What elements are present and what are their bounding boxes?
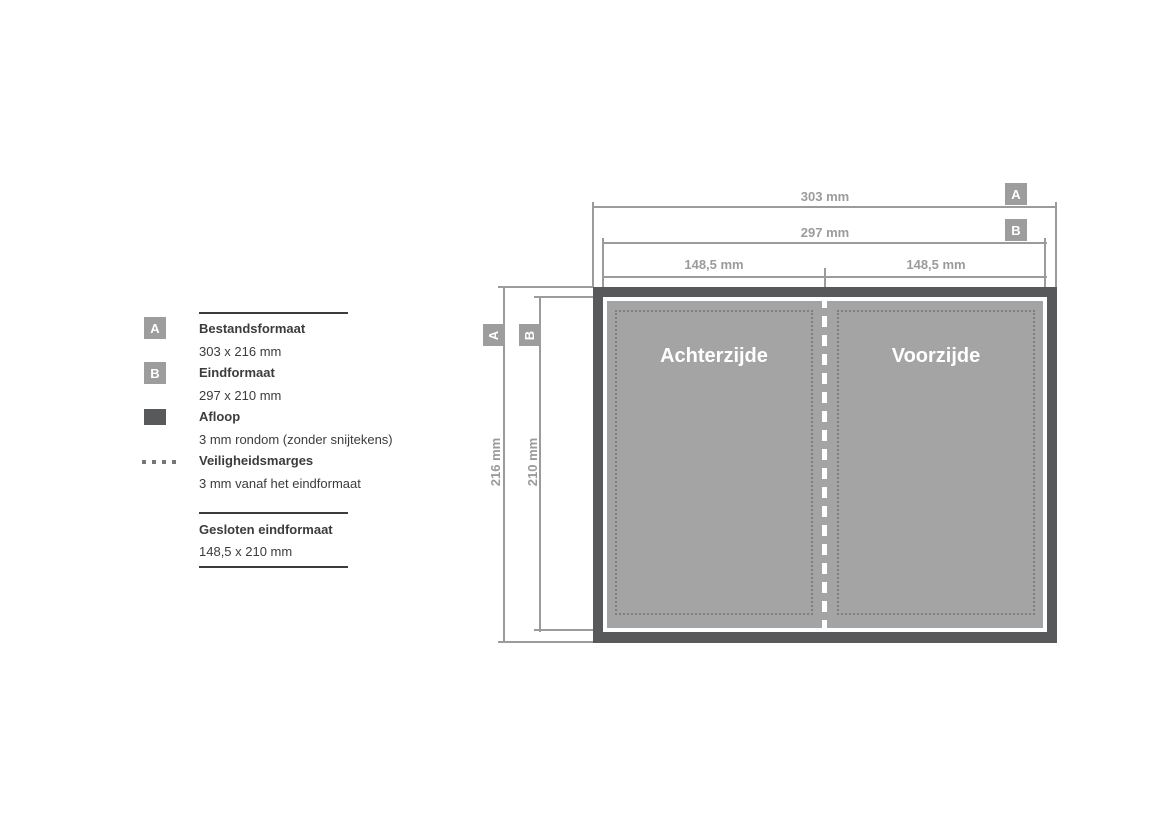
front-panel-label: Voorzijde (827, 345, 1045, 367)
dimension-297mm-label: 297 mm (603, 226, 1047, 240)
legend-eindformaat-title: Eindformaat (199, 366, 275, 380)
legend-afloop-title: Afloop (199, 410, 240, 424)
dimension-216mm-badge: A (483, 324, 505, 346)
dimension-tick (498, 641, 593, 643)
back-panel-label: Achterzijde (605, 345, 823, 367)
dimension-tick (1055, 202, 1057, 287)
bleed-swatch-icon (144, 409, 166, 425)
dimension-303mm-label: 303 mm (593, 190, 1057, 204)
dimension-148-5mm-right-label: 148,5 mm (825, 258, 1047, 272)
legend-format-b-badge: B (144, 362, 166, 384)
legend-format-a-badge-letter: A (150, 321, 159, 336)
legend-veiligheidsmarges-value: 3 mm vanaf het eindformaat (199, 477, 361, 491)
legend-veiligheidsmarges-title: Veiligheidsmarges (199, 454, 313, 468)
legend-gesloten-eindformaat-title: Gesloten eindformaat (199, 523, 333, 537)
dimension-303mm-badge: A (1005, 183, 1027, 205)
legend-afloop-value: 3 mm rondom (zonder snijtekens) (199, 433, 393, 447)
dot (142, 460, 146, 464)
dimension-line-297mm (603, 242, 1047, 244)
legend-divider-middle (199, 512, 348, 514)
badge-letter: A (1011, 187, 1020, 202)
dimension-line-303mm (593, 206, 1057, 208)
dimension-216mm-label: 216 mm (489, 422, 503, 502)
legend-bestandsformaat-value: 303 x 216 mm (199, 345, 281, 359)
dimension-mid-tick (824, 268, 826, 287)
badge-letter: A (486, 330, 501, 339)
badge-letter: B (522, 330, 537, 339)
badge-letter: B (1011, 223, 1020, 238)
dimension-tick (498, 286, 593, 288)
safety-margin-dots-icon (142, 460, 176, 464)
legend-divider-top (199, 312, 348, 314)
dimension-148-5mm-left-label: 148,5 mm (603, 258, 825, 272)
legend-divider-bottom (199, 566, 348, 568)
legend-bestandsformaat-title: Bestandsformaat (199, 322, 305, 336)
dimension-tick (592, 202, 594, 287)
legend-gesloten-eindformaat-value: 148,5 x 210 mm (199, 545, 292, 559)
legend-format-b-badge-letter: B (150, 366, 159, 381)
print-template-infographic: A Bestandsformaat 303 x 216 mm B Eindfor… (0, 0, 1169, 827)
dimension-297mm-badge: B (1005, 219, 1027, 241)
dot (152, 460, 156, 464)
dimension-210mm-badge: B (519, 324, 541, 346)
dot (172, 460, 176, 464)
legend-eindformaat-value: 297 x 210 mm (199, 389, 281, 403)
dot (162, 460, 166, 464)
legend-format-a-badge: A (144, 317, 166, 339)
dimension-210mm-label: 210 mm (526, 422, 540, 502)
